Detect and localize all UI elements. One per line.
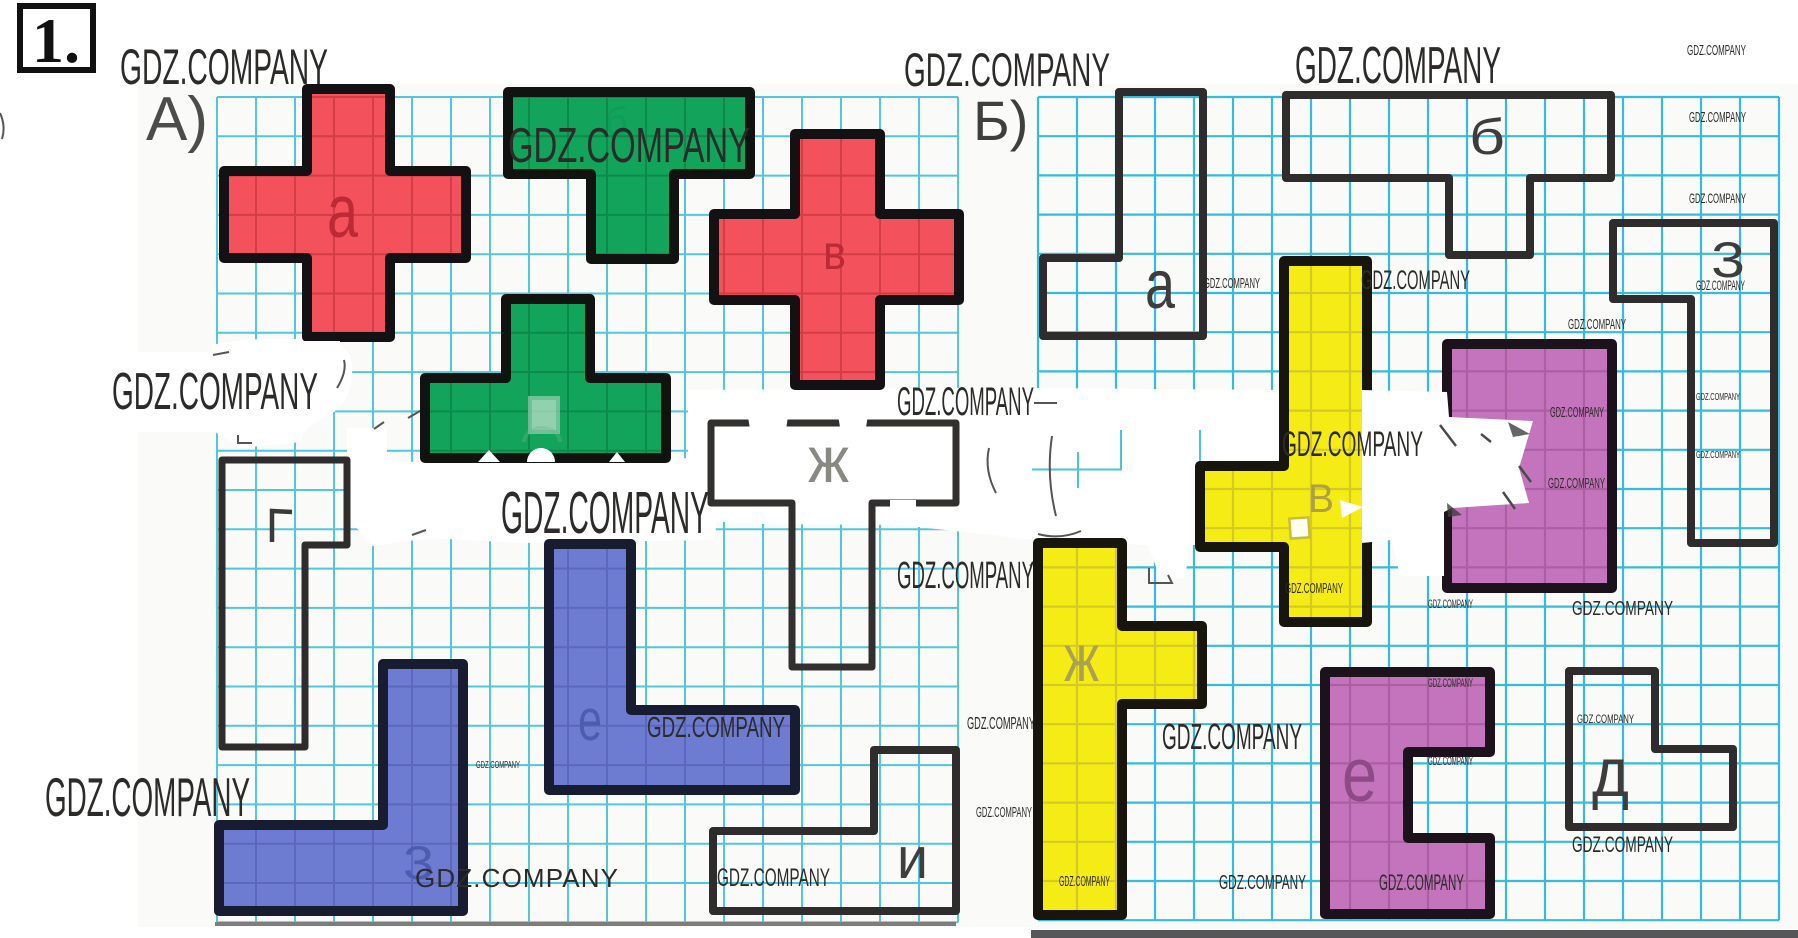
svg-text:GDZ.COMPANY: GDZ.COMPANY (1696, 449, 1740, 461)
svg-text:GDZ.COMPANY: GDZ.COMPANY (1282, 425, 1423, 464)
svg-text:В: В (1308, 477, 1334, 521)
svg-text:GDZ.COMPANY: GDZ.COMPANY (501, 480, 709, 546)
svg-text:GDZ.COMPANY: GDZ.COMPANY (1428, 599, 1473, 611)
svg-text:GDZ.COMPANY: GDZ.COMPANY (1687, 42, 1746, 59)
svg-text:GDZ.COMPANY: GDZ.COMPANY (897, 555, 1034, 597)
svg-text:GDZ.COMPANY: GDZ.COMPANY (415, 863, 618, 893)
svg-text:GDZ.COMPANY: GDZ.COMPANY (508, 119, 750, 173)
svg-text:GDZ.COMPANY: GDZ.COMPANY (976, 804, 1032, 821)
svg-text:GDZ.COMPANY: GDZ.COMPANY (1548, 475, 1605, 492)
svg-text:GDZ.COMPANY: GDZ.COMPANY (1059, 873, 1110, 890)
svg-text:GDZ.COMPANY: GDZ.COMPANY (1428, 678, 1473, 690)
svg-text:GDZ.COMPANY: GDZ.COMPANY (897, 380, 1034, 424)
svg-text:GDZ.COMPANY: GDZ.COMPANY (1550, 404, 1604, 421)
svg-text:е: е (1342, 732, 1377, 818)
svg-text:GDZ.COMPANY: GDZ.COMPANY (1568, 316, 1626, 333)
svg-text:GDZ.COMPANY: GDZ.COMPANY (1204, 275, 1260, 292)
svg-text:GDZ.COMPANY: GDZ.COMPANY (1162, 716, 1302, 757)
svg-text:GDZ.COMPANY: GDZ.COMPANY (1219, 871, 1306, 894)
svg-text:и: и (897, 826, 928, 891)
svg-text:GDZ.COMPANY: GDZ.COMPANY (1361, 265, 1470, 295)
svg-text:GDZ.COMPANY: GDZ.COMPANY (967, 713, 1035, 733)
svg-text:GDZ.COMPANY: GDZ.COMPANY (1689, 109, 1746, 126)
svg-text:GDZ.COMPANY: GDZ.COMPANY (1295, 37, 1501, 95)
svg-text:GDZ.COMPANY: GDZ.COMPANY (1428, 756, 1473, 768)
svg-text:ж: ж (1064, 621, 1099, 696)
svg-text:GDZ.COMPANY: GDZ.COMPANY (1572, 832, 1673, 857)
svg-text:е: е (578, 688, 602, 753)
svg-text:GDZ.COMPANY: GDZ.COMPANY (1379, 870, 1464, 895)
svg-text:1.: 1. (32, 5, 80, 76)
svg-text:в: в (823, 227, 846, 280)
svg-text:GDZ.COMPANY: GDZ.COMPANY (1572, 597, 1673, 620)
svg-text:GDZ.COMPANY: GDZ.COMPANY (1689, 190, 1746, 206)
svg-text:GDZ.COMPANY: GDZ.COMPANY (647, 712, 785, 744)
svg-text:GDZ.COMPANY: GDZ.COMPANY (45, 766, 250, 828)
svg-text:GDZ.COMPANY: GDZ.COMPANY (476, 760, 520, 771)
svg-text:GDZ.COMPANY: GDZ.COMPANY (1577, 714, 1634, 726)
svg-text:а: а (1145, 246, 1175, 323)
svg-text:GDZ.COMPANY: GDZ.COMPANY (717, 864, 830, 892)
svg-text:GDZ.COMPANY: GDZ.COMPANY (1696, 391, 1740, 403)
svg-text:А): А) (146, 85, 208, 154)
svg-text:GDZ.COMPANY: GDZ.COMPANY (112, 363, 318, 421)
svg-text:Б): Б) (973, 89, 1028, 152)
svg-text:а: а (327, 169, 358, 253)
svg-text:д: д (1592, 733, 1629, 811)
svg-text:GDZ.COMPANY: GDZ.COMPANY (1696, 277, 1745, 293)
svg-text:б: б (1469, 109, 1505, 165)
svg-text:ж: ж (808, 423, 849, 496)
svg-text:GDZ.COMPANY: GDZ.COMPANY (1285, 580, 1343, 597)
